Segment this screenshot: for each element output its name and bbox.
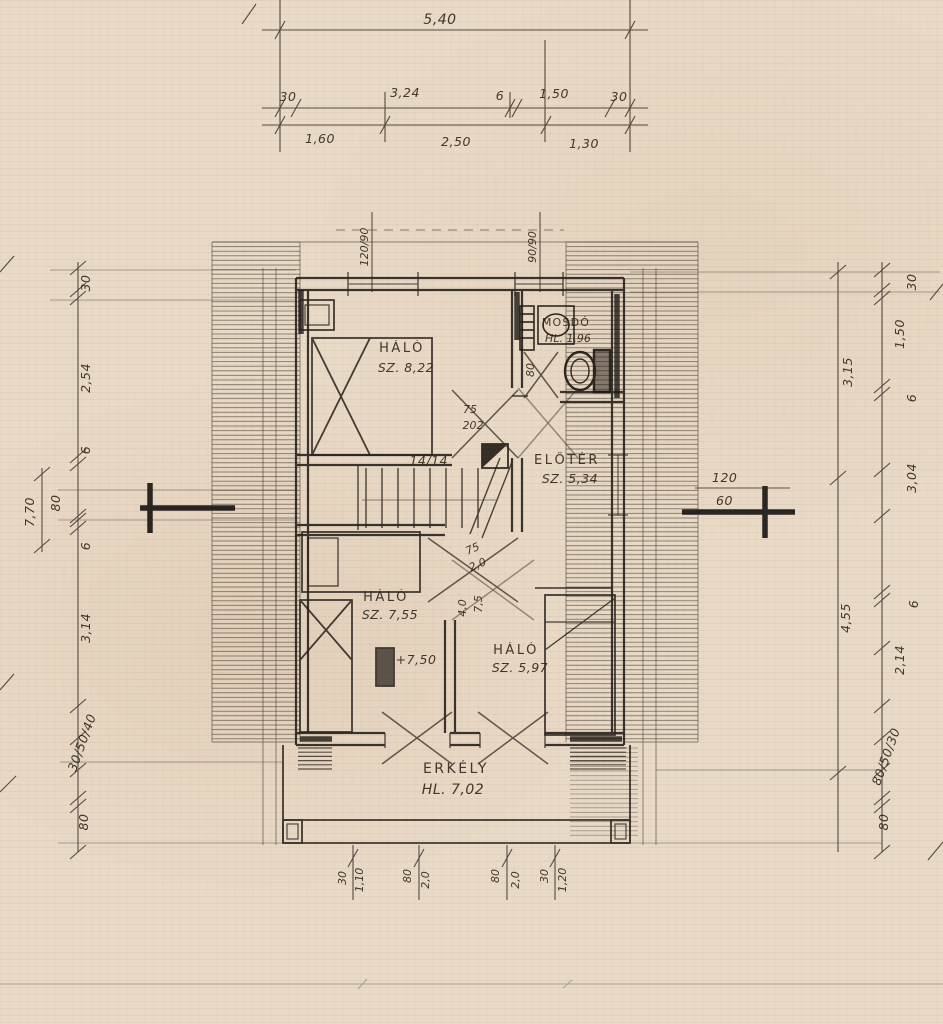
- dim-left: 30: [78, 275, 93, 292]
- level-mark: +7,50: [396, 652, 437, 667]
- dim-top: 30: [611, 89, 628, 104]
- chimney-flue: [482, 444, 508, 468]
- room-bedroom-top-name: HÁLÓ: [379, 340, 425, 356]
- dim-right: 2,14: [892, 645, 907, 675]
- bottom-dim-labels: 30 1,10 80 2,0 80 2,0 30 1,20: [336, 868, 569, 893]
- room-bedroom-right-area: SZ. 5,97: [492, 660, 548, 675]
- dim-left-stack: 30/50/40: [64, 712, 99, 774]
- dim-right: 3,04: [904, 463, 919, 493]
- room-balcony-name: ERKÉLY: [423, 760, 489, 777]
- room-bedroom-top-area: SZ. 8,22: [378, 360, 434, 375]
- dim-left: 80: [48, 495, 63, 512]
- dim-top: 3,24: [390, 85, 420, 100]
- window-spec-width: 120: [712, 470, 737, 485]
- floor-plan-drawing: 5,40 30 3,24 6 1,50 30 1,60 2,50 1,30 12…: [0, 0, 943, 1024]
- window-tag-right: 90/90: [526, 231, 539, 263]
- dim-overall-width: 5,40: [423, 12, 456, 28]
- door-dim-top-height: 202: [463, 419, 484, 432]
- dim-right: 30: [904, 274, 919, 291]
- balcony-wall-hatch-right: [570, 748, 626, 769]
- dim-top: 30: [280, 89, 297, 104]
- dim-right: 1,50: [892, 319, 907, 349]
- dim-top: 2,50: [441, 134, 471, 149]
- dim-bottom: 1,20: [556, 868, 569, 893]
- dim-bottom: 2,0: [419, 871, 432, 889]
- door-dim-top-width: 75: [463, 403, 477, 416]
- balcony-wall-hatch-left: [298, 748, 332, 769]
- dim-left-bottom: 80: [76, 814, 91, 831]
- room-bedroom-right-name: HÁLÓ: [493, 642, 539, 658]
- dim-right: 6: [904, 394, 919, 402]
- door-dim-mid-height: 2,0: [467, 555, 488, 574]
- left-dim-chain: [0, 256, 296, 859]
- dim-left: 6: [78, 446, 93, 454]
- dim-bottom: 2,0: [509, 871, 522, 889]
- door-dim-low-a: 4,0: [456, 599, 469, 617]
- dim-right-stack: 80/50/30: [868, 726, 903, 788]
- room-bedroom-mid-area: SZ. 7,55: [362, 607, 418, 622]
- dim-top: 6: [496, 88, 504, 103]
- dim-bottom: 80: [489, 869, 502, 883]
- right-dim-labels: 30 1,50 6 3,04 6 2,14 3,15 4,55 80/50/30…: [838, 274, 921, 831]
- dim-left: 2,54: [78, 363, 93, 393]
- dim-left-overall: 7,70: [22, 497, 37, 527]
- dim-right-bottom: 80: [876, 814, 891, 831]
- dim-bottom: 30: [336, 871, 349, 885]
- room-foyer-name: ELŐTÉR: [534, 452, 600, 468]
- dim-right: 6: [906, 600, 921, 608]
- bottom-dim-chain: [348, 845, 560, 900]
- dim-top: 1,30: [569, 136, 599, 151]
- dim-top: 1,60: [305, 131, 335, 146]
- room-bedroom-mid-name: HÁLÓ: [363, 589, 409, 605]
- room-washroom-name: MOSDÓ: [542, 316, 590, 329]
- dim-bottom: 30: [538, 869, 551, 883]
- door-dim-low-b: 7,5: [472, 595, 485, 613]
- top-dimension-labels: 5,40 30 3,24 6 1,50 30 1,60 2,50 1,30: [280, 12, 628, 151]
- dim-right-inner-bottom: 4,55: [838, 603, 853, 633]
- dim-top: 1,50: [539, 86, 569, 101]
- left-dim-labels: 30 2,54 6 80 6 3,14 7,70 30/50/40 80: [22, 275, 99, 831]
- window-tag-left: 120/90: [358, 228, 371, 267]
- washroom-width: 80: [524, 363, 537, 377]
- door-dim-mid-width: 75: [464, 540, 482, 558]
- dim-right-inner-top: 3,15: [840, 357, 855, 387]
- dim-left: 6: [78, 542, 93, 550]
- dim-bottom: 1,10: [353, 868, 366, 893]
- dim-bottom: 80: [401, 869, 414, 883]
- right-dim-chain: [630, 262, 943, 860]
- room-washroom-area: HL. 1,96: [545, 332, 591, 345]
- room-foyer-area: SZ. 5,34: [542, 471, 598, 486]
- page-bottom-rule: [0, 979, 943, 989]
- section-marker-right: [682, 486, 795, 538]
- window-spec-sill: 60: [716, 493, 733, 508]
- room-balcony-area: HL. 7,02: [422, 782, 484, 798]
- blueprint-page: 5,40 30 3,24 6 1,50 30 1,60 2,50 1,30 12…: [0, 0, 943, 1024]
- dim-left: 3,14: [78, 613, 93, 643]
